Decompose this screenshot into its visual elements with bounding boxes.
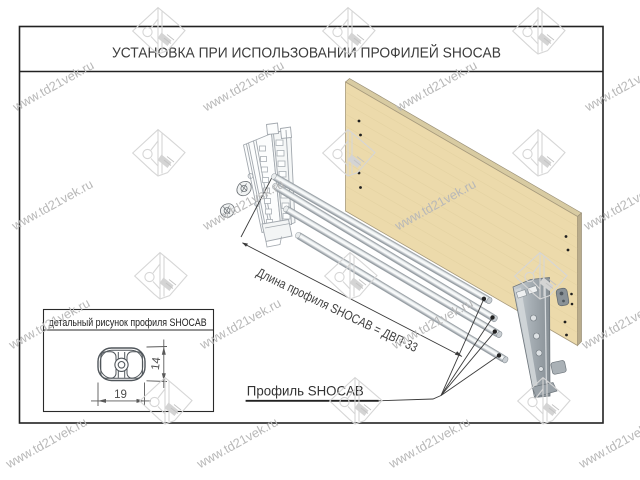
svg-text:19: 19: [114, 389, 127, 401]
svg-text:14: 14: [150, 356, 164, 371]
svg-text:УСТАНОВКА ПРИ ИСПОЛЬЗОВАНИИ ПР: УСТАНОВКА ПРИ ИСПОЛЬЗОВАНИИ ПРОФИЛЕЙ SHO…: [112, 43, 501, 61]
